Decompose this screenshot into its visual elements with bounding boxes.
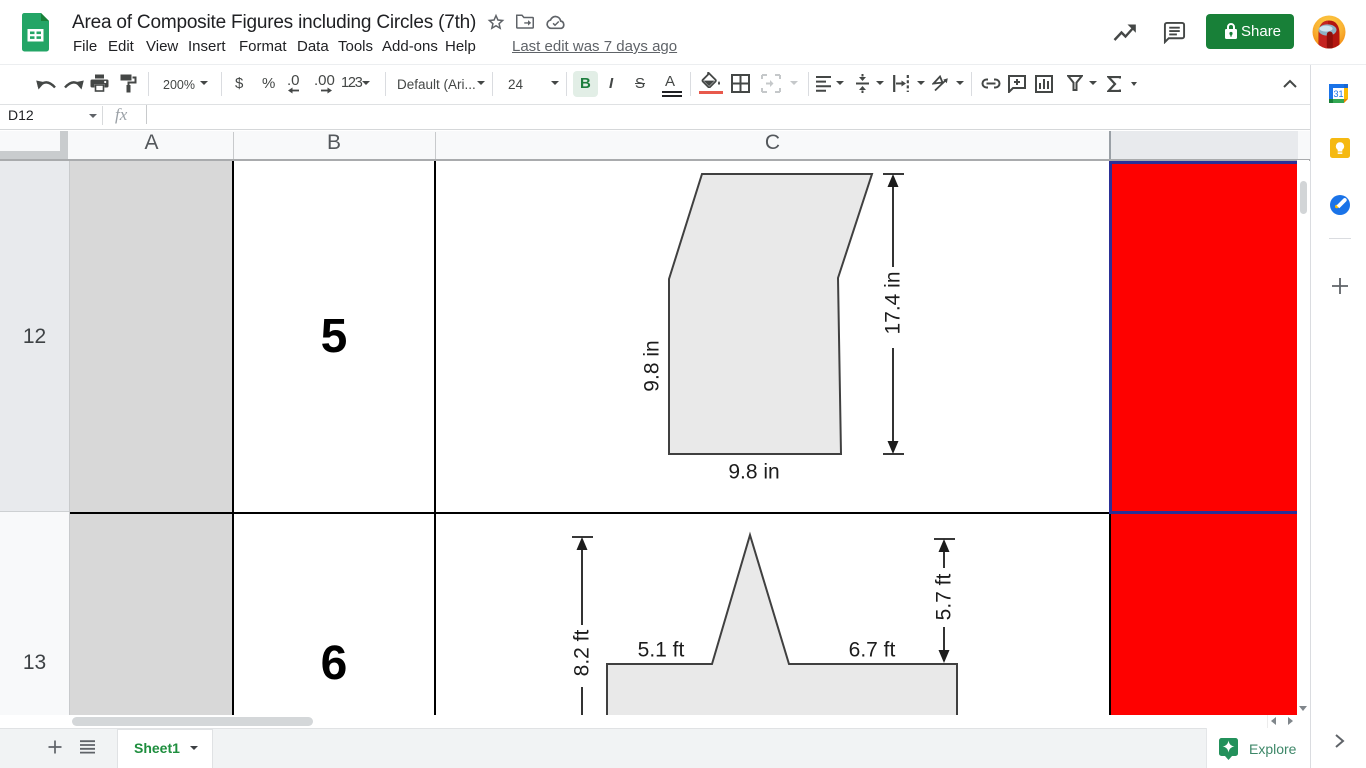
svg-text:17.4 in: 17.4 in <box>882 271 905 334</box>
svg-text:8.2 ft: 8.2 ft <box>571 629 594 676</box>
svg-text:31: 31 <box>1333 89 1343 99</box>
svg-text:6.7 ft: 6.7 ft <box>849 639 896 662</box>
svg-text:5.1 ft: 5.1 ft <box>638 639 685 662</box>
svg-text:9.8 in: 9.8 in <box>728 461 779 484</box>
svg-text:9.8 in: 9.8 in <box>641 340 664 391</box>
svg-text:5.7 ft: 5.7 ft <box>933 573 956 620</box>
